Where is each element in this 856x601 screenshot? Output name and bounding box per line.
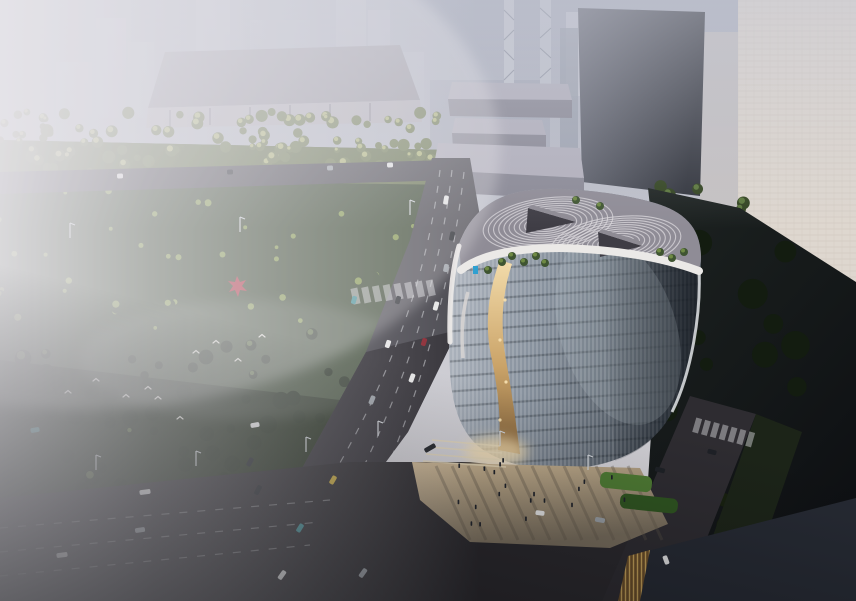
aerial-scene — [0, 0, 856, 601]
rendering-canvas — [0, 0, 856, 601]
vignette — [0, 0, 856, 601]
